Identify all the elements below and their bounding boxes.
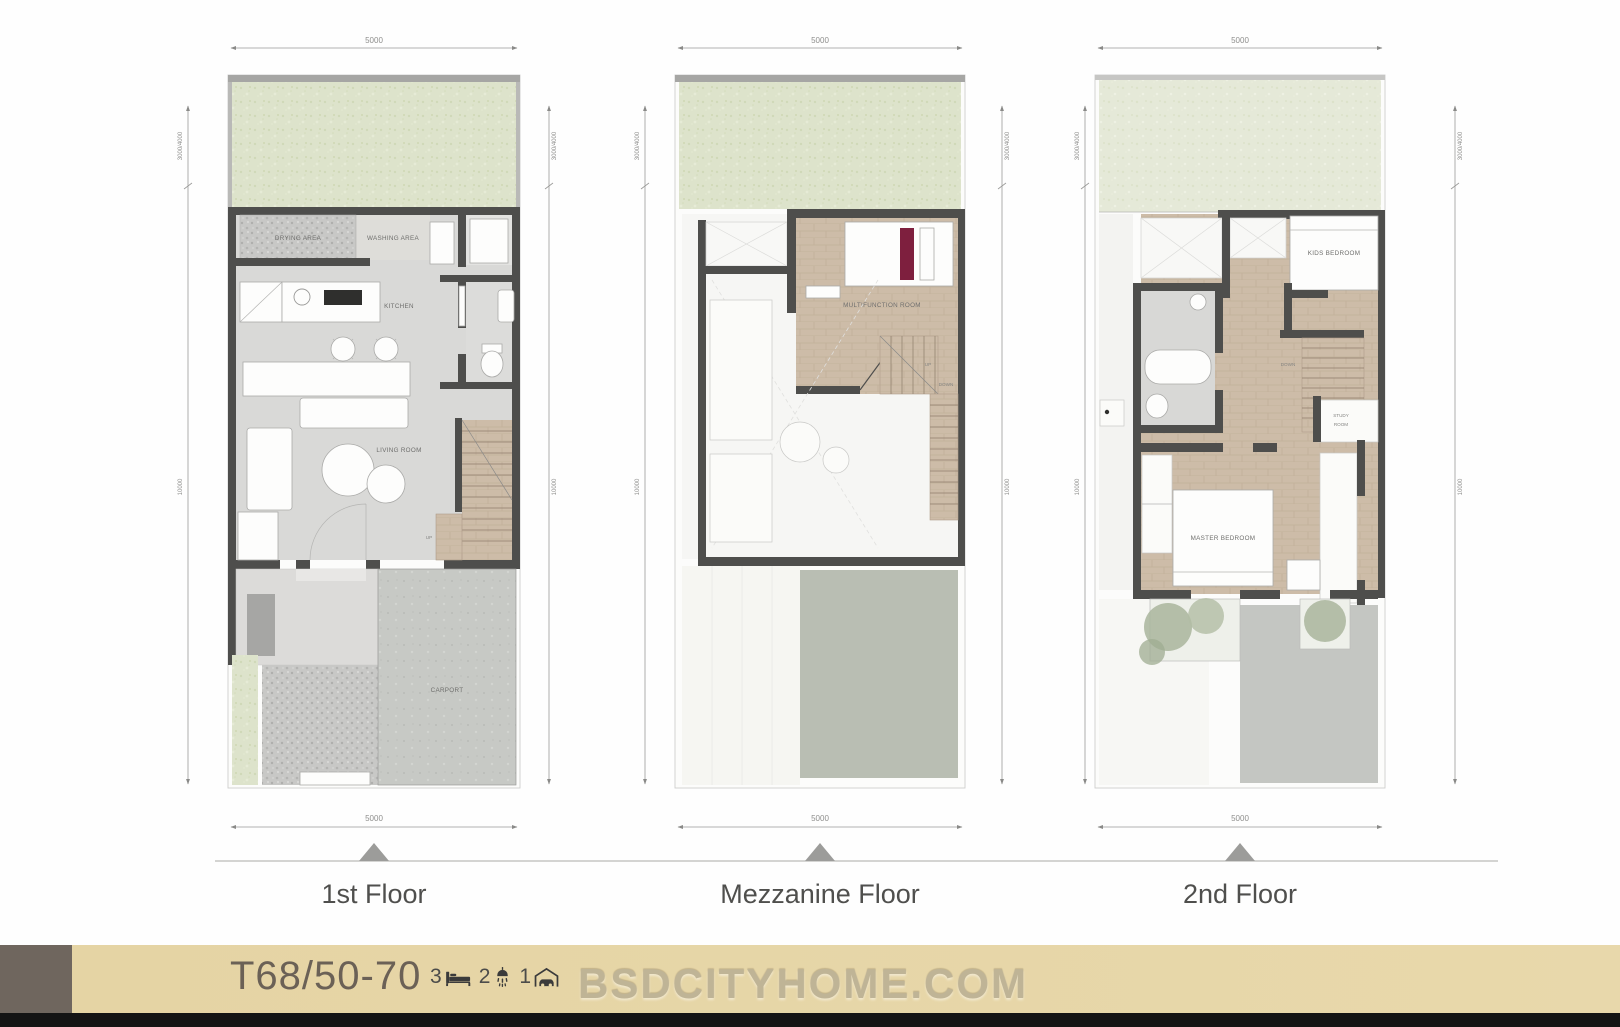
dim-garden-right-mezz: 3000/4000 <box>1005 131 1011 160</box>
model-code: T68/50-70 <box>230 954 421 999</box>
toilet-second <box>1146 394 1168 418</box>
wardrobe-right <box>1320 453 1357 603</box>
dim-depth-left-mezz: 10000 <box>635 478 641 495</box>
room-label-study-1: STUDY <box>1333 413 1349 418</box>
baths-count: 2 <box>479 965 491 989</box>
bathroom-door <box>459 286 465 326</box>
car-garage-icon <box>534 967 559 988</box>
dim-width-top-mezz: 5000 <box>811 36 829 45</box>
storage-cabinet <box>470 219 508 263</box>
entry-mat <box>300 772 370 785</box>
roof-garden-second <box>1099 80 1381 212</box>
watermark: BSDCITYHOME.COM <box>578 960 1028 1008</box>
bench-master <box>1287 560 1320 590</box>
stair-label-up-first: UP <box>426 535 432 540</box>
accent-pillow <box>900 228 914 280</box>
spec-list: 3 2 <box>430 965 559 989</box>
room-label-kids: KIDS BEDROOM <box>1308 250 1361 257</box>
bed-icon <box>445 968 472 987</box>
dim-garden-left-mezz: 3000/4000 <box>635 131 641 160</box>
side-garden-strip <box>232 655 258 785</box>
dim-width-top-second: 5000 <box>1231 36 1249 45</box>
floor-label-mezzanine: Mezzanine Floor <box>720 879 920 909</box>
dim-width-bottom-mezz: 5000 <box>811 814 829 823</box>
bed-multifunction <box>845 222 953 286</box>
room-label-drying: DRYING AREA <box>275 235 322 242</box>
floor-plans-canvas: 5000 3000/4000 10000 3000/4000 10000 500… <box>0 0 1620 925</box>
side-sofa <box>247 428 292 510</box>
floor-plan-sheet: 5000 3000/4000 10000 3000/4000 10000 500… <box>0 0 1620 1027</box>
room-label-multifunction: MULTIFUNCTION ROOM <box>843 302 921 309</box>
planter-wall <box>247 594 275 656</box>
dim-depth-right-first: 10000 <box>552 478 558 495</box>
spec-cars: 1 <box>519 965 559 989</box>
dim-depth-left-first: 10000 <box>178 478 184 495</box>
sink <box>498 290 514 322</box>
dim-garden-left-first: 3000/4000 <box>178 131 184 160</box>
toilet <box>481 351 503 377</box>
stair-label-up-mezz: UP <box>925 362 931 367</box>
bottom-banner: T68/50-70 3 2 <box>0 945 1620 1013</box>
sink-second <box>1190 294 1206 310</box>
banner-body: T68/50-70 3 2 <box>72 945 1620 1013</box>
washing-machine <box>430 222 454 264</box>
dim-garden-right-second: 3000/4000 <box>1458 131 1464 160</box>
roof-below-mezz <box>800 570 958 778</box>
room-label-carport: CARPORT <box>431 687 464 694</box>
room-label-washing: WASHING AREA <box>367 235 420 242</box>
stair-label-down-mezz: DOWN <box>939 382 954 387</box>
floor-label-second: 2nd Floor <box>1183 879 1297 909</box>
dim-depth-right-second: 10000 <box>1458 478 1464 495</box>
garden-first <box>232 82 516 209</box>
marker-triangle-second <box>1225 843 1255 861</box>
beds-count: 3 <box>430 965 442 989</box>
kitchen-island <box>243 362 410 396</box>
pillow <box>920 228 934 280</box>
cars-count: 1 <box>519 965 531 989</box>
cabinet <box>238 512 278 560</box>
bottom-black-bar <box>0 1013 1620 1027</box>
side-table <box>367 465 405 503</box>
room-label-living: LIVING ROOM <box>376 447 421 454</box>
marker-triangle-first <box>359 843 389 861</box>
spec-baths: 2 <box>479 965 513 989</box>
banner-left-block <box>0 945 72 1013</box>
shaft <box>1100 400 1124 426</box>
sofa <box>300 398 408 428</box>
floor-label-first: 1st Floor <box>321 879 426 909</box>
open-to-below-top <box>698 222 794 274</box>
mezzanine-floor-plan: 5000 3000/4000 10000 3000/4000 10000 500… <box>635 36 1011 827</box>
garden-mezz <box>679 82 961 209</box>
floor-label-row: 1st Floor Mezzanine Floor 2nd Floor <box>215 843 1498 909</box>
dim-garden-right-first: 3000/4000 <box>552 131 558 160</box>
terrace-mezz <box>682 566 800 785</box>
dim-width-bottom-first: 5000 <box>365 814 383 823</box>
room-label-kitchen: KITCHEN <box>384 303 414 310</box>
coffee-table <box>322 444 374 496</box>
marker-triangle-mezz <box>805 843 835 861</box>
second-floor-plan: 5000 3000/4000 10000 3000/4000 10000 500… <box>1075 36 1464 827</box>
bathtub <box>1145 350 1211 384</box>
carport <box>378 569 516 785</box>
dim-garden-left-second: 3000/4000 <box>1075 131 1081 160</box>
dim-width-bottom-second: 5000 <box>1231 814 1249 823</box>
first-floor-plan: 5000 3000/4000 10000 3000/4000 10000 500… <box>178 36 558 827</box>
study-room: STUDY ROOM <box>1313 396 1378 442</box>
room-label-study-2: ROOM <box>1334 422 1348 427</box>
bench <box>806 286 840 298</box>
spec-beds: 3 <box>430 965 472 989</box>
dim-width-top-first: 5000 <box>365 36 383 45</box>
stair-label-down-second: DOWN <box>1281 362 1296 367</box>
room-label-master: MASTER BEDROOM <box>1191 535 1256 542</box>
dim-depth-right-mezz: 10000 <box>1005 478 1011 495</box>
dim-depth-left-second: 10000 <box>1075 478 1081 495</box>
shower-icon <box>493 967 512 988</box>
stove <box>324 290 362 305</box>
gravel-path <box>262 665 378 785</box>
